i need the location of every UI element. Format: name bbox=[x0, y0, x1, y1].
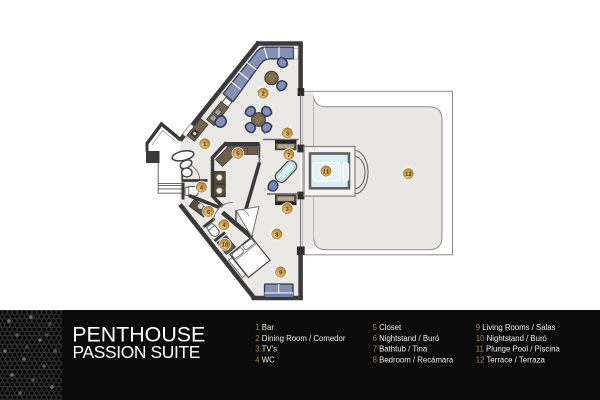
svg-text:8 Bedroom / Recámara: 8 Bedroom / Recámara bbox=[373, 355, 454, 364]
svg-text:10 Nightstand / Buró: 10 Nightstand / Buró bbox=[476, 334, 548, 343]
svg-text:9 Living Rooms / Salas: 9 Living Rooms / Salas bbox=[476, 323, 556, 332]
svg-text:6 Nightstand / Buró: 6 Nightstand / Buró bbox=[373, 334, 440, 343]
svg-text:12 Terrace / Terraza: 12 Terrace / Terraza bbox=[476, 355, 546, 364]
svg-text:12: 12 bbox=[405, 172, 412, 178]
svg-text:11: 11 bbox=[323, 169, 330, 175]
svg-text:5 Closet: 5 Closet bbox=[373, 323, 402, 332]
svg-text:2 Dining Room / Comedor: 2 Dining Room / Comedor bbox=[255, 334, 346, 343]
svg-text:1 Bar: 1 Bar bbox=[255, 323, 274, 332]
svg-text:10: 10 bbox=[222, 243, 229, 249]
svg-text:4 WC: 4 WC bbox=[255, 355, 275, 364]
svg-text:7 Bathtub / Tina: 7 Bathtub / Tina bbox=[373, 345, 428, 354]
svg-text:3 TV's: 3 TV's bbox=[255, 345, 277, 354]
svg-text:PASSION SUITE: PASSION SUITE bbox=[73, 342, 201, 362]
svg-text:11 Plunge Pool / Piscina: 11 Plunge Pool / Piscina bbox=[476, 345, 561, 354]
